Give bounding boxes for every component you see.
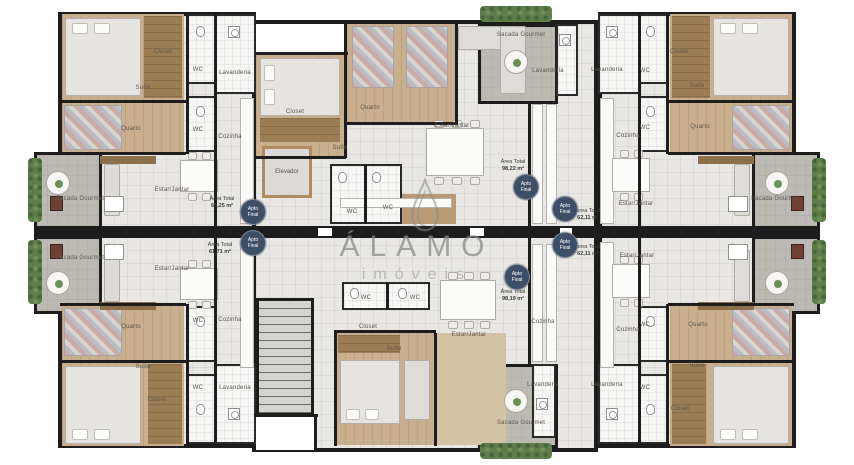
wc-room (638, 96, 668, 152)
room-label-quarto: Quarto (121, 126, 141, 132)
pillow (742, 429, 758, 440)
pillow (720, 23, 736, 34)
hedge (28, 158, 42, 222)
wall (214, 238, 217, 446)
dining-table (612, 264, 650, 298)
round-table (765, 171, 789, 195)
chair (202, 260, 211, 268)
utility-box (728, 244, 748, 260)
wall (668, 152, 794, 155)
wall (666, 304, 669, 446)
wall (638, 238, 641, 446)
apto-badge: Apto Final (240, 230, 266, 256)
room-label-estar: Estar/Jantar (452, 332, 487, 338)
area-title: Área Total (490, 159, 536, 166)
floor-plan: Elevador (0, 0, 854, 465)
room-label-suite: Suíte (135, 364, 150, 370)
chair (188, 152, 197, 160)
room-label-lavanderia: Lavanderia (532, 68, 564, 74)
double-bed (260, 58, 340, 116)
toilet (646, 404, 655, 415)
tv-panel (698, 156, 754, 164)
laundry-room (598, 364, 640, 444)
wall (254, 414, 318, 417)
washing-machine (228, 26, 240, 38)
single-bed (64, 308, 122, 356)
grill (791, 244, 804, 259)
single-bed (732, 308, 790, 356)
pillow (742, 23, 758, 34)
toilet (372, 172, 381, 183)
room-label-closet: Closet (670, 49, 688, 55)
room-label-wc: WC (193, 67, 203, 73)
room-label-lavanderia: Lavanderia (591, 382, 623, 388)
double-bed (713, 366, 789, 444)
badge-line: Final (560, 209, 571, 215)
wall (455, 24, 458, 124)
area-label-bottom-center: Área Total 98,19 m² (490, 289, 536, 303)
room-label-quarto: Quarto (121, 324, 141, 330)
room-label-lavanderia: Lavanderia (219, 385, 251, 391)
room-label-closet: Closet (286, 109, 304, 115)
wall (256, 52, 348, 55)
room-label-estar: Estar/Jantar (155, 266, 190, 272)
room-label-sacada: Sacada Gourmet (56, 255, 104, 261)
sofa (404, 360, 430, 420)
area-label-bottom-left: Área Total 61,71 m² (197, 242, 243, 256)
kitchen-counter (240, 242, 254, 368)
pillow (346, 409, 360, 420)
room-label-cozinha: Cozinha (218, 317, 241, 323)
washing-machine (606, 408, 618, 420)
double-bed (340, 360, 400, 424)
room-living-bottom-center (436, 333, 506, 445)
chair (452, 177, 462, 185)
wall (256, 156, 346, 159)
toilet (398, 288, 407, 299)
wall (334, 330, 436, 333)
wall (60, 100, 186, 103)
room-label-cozinha: Cozinha (616, 327, 639, 333)
room-label-wc: WC (361, 295, 371, 301)
room-label-estar: Estar/Jantar (620, 253, 655, 259)
pillow (94, 23, 110, 34)
toilet (196, 26, 205, 37)
chair (480, 321, 490, 329)
area-title: Área Total (490, 289, 536, 296)
chair (188, 301, 197, 309)
room-label-cozinha: Cozinha (218, 134, 241, 140)
utility-box (728, 196, 748, 212)
room-label-sacada: Sacada Gourmet (497, 420, 545, 426)
area-title: Área Total (199, 196, 245, 203)
wc-room (186, 96, 216, 152)
room-label-closet: Closet (148, 397, 166, 403)
room-label-wc: WC (640, 385, 650, 391)
room-label-closet: Closet (359, 324, 377, 330)
room-label-cozinha: Cozinha (616, 133, 639, 139)
single-bed (732, 105, 790, 150)
wardrobe (148, 364, 182, 444)
wall (434, 333, 437, 446)
double-bed (65, 18, 141, 96)
room-label-wc: WC (640, 125, 650, 131)
chair (620, 150, 629, 158)
wall (386, 282, 389, 310)
chair (202, 301, 211, 309)
round-table (46, 271, 70, 295)
area-value: 61,25 m² (199, 203, 245, 210)
kitchen-counter (546, 244, 557, 362)
area-value: 98,19 m² (490, 296, 536, 303)
toilet (350, 288, 359, 299)
double-bed (713, 18, 789, 96)
wall (60, 152, 186, 155)
area-label-top-left: Área Total 61,25 m² (199, 196, 245, 210)
badge-line: Final (521, 187, 532, 193)
wall (60, 360, 186, 363)
chair (448, 321, 458, 329)
utility-box (104, 244, 124, 260)
round-table (765, 271, 789, 295)
room-label-estar: Estar/Jantar (155, 187, 190, 193)
wall (668, 100, 794, 103)
chair (470, 177, 480, 185)
round-table (504, 50, 528, 74)
wall (638, 12, 641, 228)
area-title: Área Total (197, 242, 243, 249)
laundry-room (214, 364, 256, 444)
wall (334, 333, 337, 446)
room-label-lavanderia: Lavanderia (219, 70, 251, 76)
balcony-top-left (34, 152, 102, 230)
watermark: ÁLAMO imóveis (307, 230, 527, 284)
hedge (480, 443, 552, 459)
pillow (94, 429, 110, 440)
wall (668, 303, 794, 306)
washing-machine (228, 408, 240, 420)
room-label-wc: WC (347, 209, 357, 215)
room-label-quarto: Quarto (690, 124, 710, 130)
chair (202, 152, 211, 160)
hedge (812, 158, 826, 222)
room-label-sacada: Sacada Gourmet (56, 196, 104, 202)
stairs (256, 298, 314, 416)
single-bed (64, 105, 122, 150)
area-label-top-center: Área Total 98,22 m² (490, 159, 536, 173)
pillow (72, 429, 88, 440)
chair (470, 120, 480, 128)
washing-machine (559, 34, 571, 46)
area-value: 61,71 m² (197, 249, 243, 256)
chair (464, 321, 474, 329)
room-label-sacada: Sacada Gourmet (497, 32, 545, 38)
badge-line: Final (248, 212, 259, 218)
wc-room (186, 306, 216, 362)
apto-badge: Apto Final (552, 232, 578, 258)
toilet (196, 404, 205, 415)
room-label-suite: Suíte (135, 85, 150, 91)
room-label-wc: WC (193, 127, 203, 133)
toilet (646, 26, 655, 37)
single-bed (406, 26, 448, 88)
outline-notch (256, 24, 344, 52)
pillow (264, 89, 275, 105)
room-label-lavanderia: Lavanderia (527, 382, 559, 388)
utility-box (104, 196, 124, 212)
room-label-closet: Closet (154, 49, 172, 55)
room-label-suite: Suíte (689, 83, 704, 89)
double-bed (65, 366, 141, 444)
room-label-cozinha: Cozinha (531, 319, 554, 325)
dining-table (612, 158, 650, 192)
room-label-wc: WC (383, 205, 393, 211)
wall (666, 12, 669, 154)
wall (186, 304, 189, 446)
round-table (46, 171, 70, 195)
toilet (646, 106, 655, 117)
hedge (28, 240, 42, 304)
kitchen-counter (532, 244, 543, 362)
alamo-leaf-icon (404, 178, 446, 232)
dining-table (180, 268, 218, 300)
washing-machine (606, 26, 618, 38)
watermark-brand: ÁLAMO (307, 230, 527, 264)
dining-table (440, 280, 496, 320)
room-label-wc: WC (410, 295, 420, 301)
room-label-wc: WC (193, 385, 203, 391)
chair (188, 193, 197, 201)
room-label-suite: Suíte (386, 346, 401, 352)
outline-notch (256, 416, 314, 450)
room-label-estar: Estar/Jantar (619, 201, 654, 207)
pillow (365, 409, 379, 420)
apto-badge: Apto Final (513, 174, 539, 200)
elevator-label: Elevador (275, 169, 299, 175)
watermark-sub: imóveis (307, 266, 527, 284)
area-value: 98,22 m² (490, 166, 536, 173)
kitchen-counter (600, 242, 614, 368)
wc-room (186, 14, 216, 84)
laundry-room (598, 14, 640, 94)
room-label-suite: Suíte (689, 363, 704, 369)
wardrobe (260, 118, 340, 142)
balcony-top-right (752, 152, 820, 230)
wall (314, 414, 317, 450)
wall (364, 164, 367, 224)
hedge (480, 6, 552, 22)
elevator: Elevador (262, 146, 312, 198)
pillow (720, 429, 736, 440)
pillow (72, 23, 88, 34)
badge-line: Final (248, 243, 259, 249)
apto-badge: Apto Final (552, 196, 578, 222)
wall (60, 303, 186, 306)
room-label-estar: Estar/Jantar (435, 123, 470, 129)
wall (668, 360, 794, 363)
wc-room (638, 306, 668, 362)
wall (344, 24, 347, 158)
round-table (504, 389, 528, 413)
room-label-lavanderia: Lavanderia (591, 67, 623, 73)
badge-line: Final (560, 245, 571, 251)
single-bed (352, 26, 394, 88)
toilet (196, 106, 205, 117)
dining-table (426, 128, 484, 176)
tv-panel (100, 156, 156, 164)
pillow (264, 65, 275, 81)
chair (620, 193, 629, 201)
wall (186, 12, 189, 154)
wardrobe (672, 364, 706, 444)
room-label-wc: WC (640, 322, 650, 328)
toilet (338, 172, 347, 183)
apto-badge: Apto Final (240, 199, 266, 225)
room-label-quarto: Quarto (688, 322, 708, 328)
room-label-sacada: Sacada Gourmet (751, 196, 799, 202)
room-label-wc: WC (640, 68, 650, 74)
room-label-closet: Closet (671, 406, 689, 412)
room-label-suite: Suíte (332, 145, 347, 151)
room-label-quarto: Quarto (360, 105, 380, 111)
room-label-wc: WC (193, 318, 203, 324)
washing-machine (536, 398, 548, 410)
chair (620, 299, 629, 307)
hedge (812, 240, 826, 304)
